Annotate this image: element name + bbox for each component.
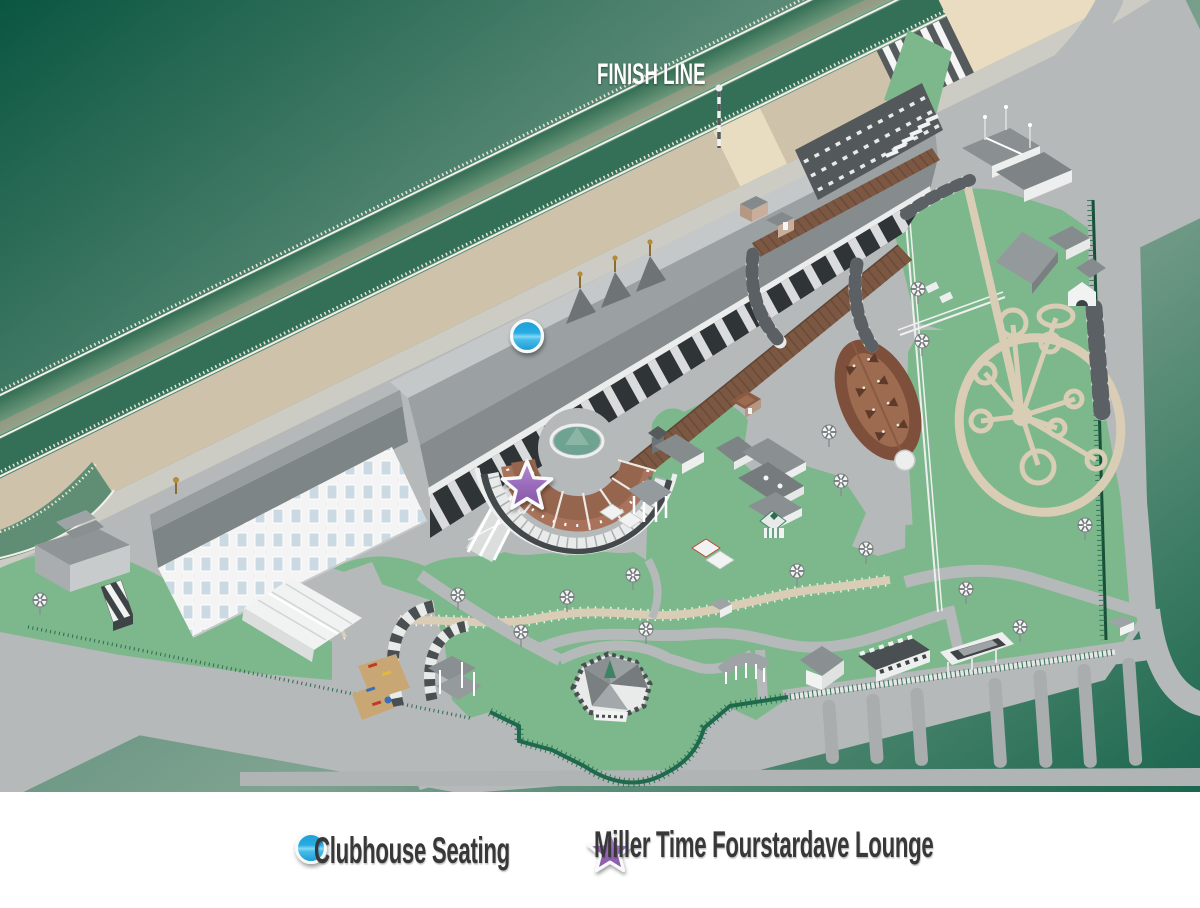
racecourse-venue-map: FINISH LINE Clubhouse Seating xyxy=(0,0,1200,908)
legend-item-fourstardave-lounge: Miller Time Fourstardave Lounge xyxy=(582,824,1160,866)
legend-label-clubhouse-seating: Clubhouse Seating xyxy=(314,830,510,872)
legend-label-fourstardave-lounge: Miller Time Fourstardave Lounge xyxy=(594,824,933,866)
map-canvas xyxy=(0,0,1200,908)
clubhouse-seating-marker xyxy=(512,321,543,352)
finish-line-label: FINISH LINE xyxy=(597,58,706,92)
legend: Clubhouse Seating Miller Time Fourstarda… xyxy=(0,792,1200,908)
